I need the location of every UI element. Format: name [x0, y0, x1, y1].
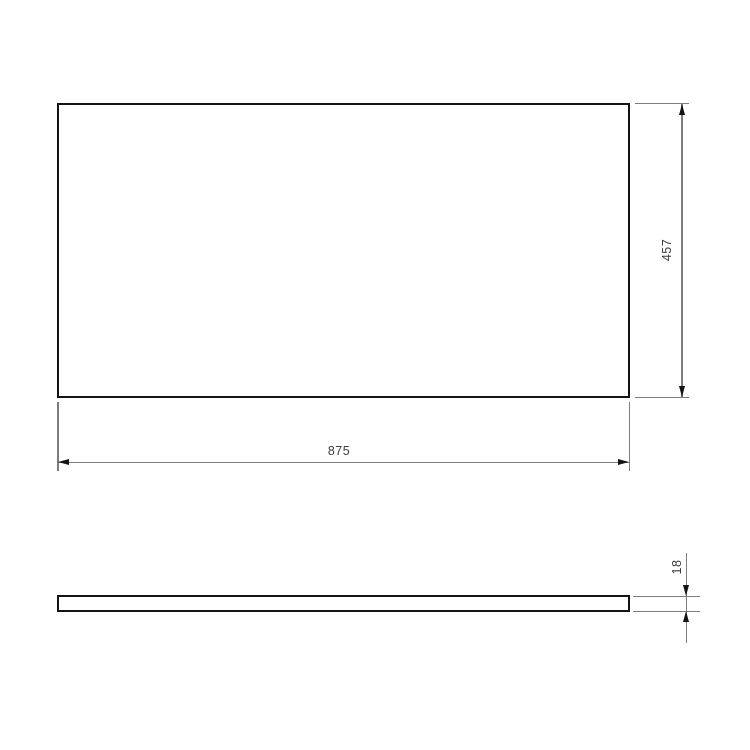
width-dim-arrow-right	[618, 459, 629, 465]
thickness-dim-line	[686, 553, 688, 643]
thickness-dim-label: 18	[671, 560, 684, 575]
thickness-dim-extension-top	[633, 596, 700, 597]
width-dim-arrow-left	[58, 459, 69, 465]
height-dim-arrow-bottom	[679, 386, 685, 397]
width-dim-line	[58, 462, 629, 464]
thickness-dim-arrow-bottom	[683, 611, 689, 622]
technical-drawing-canvas: 457 875 18	[0, 0, 750, 750]
height-dim-line	[681, 104, 683, 397]
width-dim-label: 875	[328, 445, 350, 458]
height-dim-arrow-top	[679, 104, 685, 115]
height-dim-label: 457	[661, 239, 674, 261]
thickness-dim-extension-bottom	[633, 611, 700, 612]
side-view-outline	[57, 595, 630, 612]
thickness-dim-arrow-top	[683, 585, 689, 596]
front-view-outline	[57, 103, 630, 398]
